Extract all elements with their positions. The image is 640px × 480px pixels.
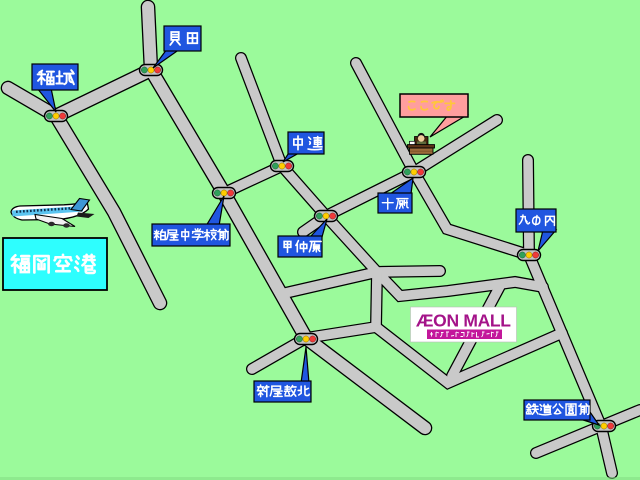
svg-text:ÆON MALL: ÆON MALL — [416, 311, 511, 331]
